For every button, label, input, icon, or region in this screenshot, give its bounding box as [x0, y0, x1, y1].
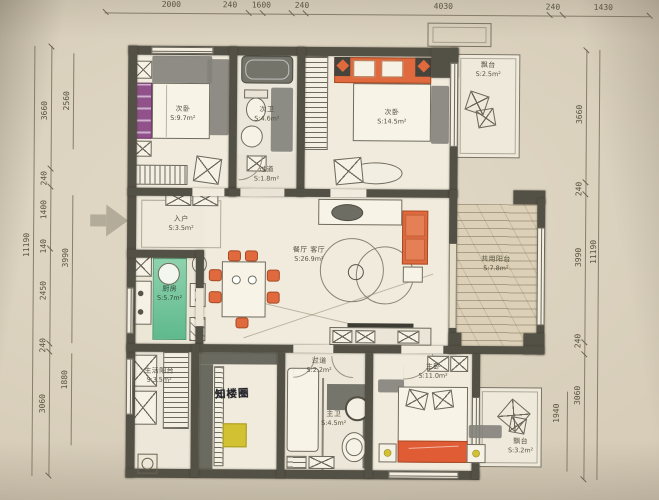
dim-label: 2000: [162, 0, 181, 9]
room-label-kitchen: 厨房 S:5.7m²: [154, 285, 186, 303]
seal-stamp-circle: [141, 458, 153, 470]
dim-label: 1400: [39, 200, 48, 219]
room-area: S:11.0m²: [409, 372, 457, 381]
room-area: S:5.7m²: [154, 294, 186, 303]
watermark-text: 知楼圈: [215, 384, 280, 402]
dim-line-right-inner: [566, 392, 568, 472]
entry-arrow-tail: [90, 214, 106, 226]
room-label-bay-bottom: 飘台 S:3.2m²: [499, 437, 543, 455]
dim-label: 240: [574, 182, 583, 197]
tv-screen: [347, 323, 413, 327]
door-opening: [401, 346, 443, 354]
room-name: 次卫: [245, 105, 289, 114]
floorplan-photo: 2000 240 1600 240 4030 240 1430 3660 240…: [0, 0, 659, 500]
seal-stamp-icon: [137, 454, 157, 474]
floor-shared-balcony: [456, 204, 537, 347]
dim-label: 1430: [594, 3, 613, 12]
door-opening: [293, 345, 333, 353]
window: [126, 288, 133, 334]
pillow: [353, 60, 375, 77]
shower-grate: [286, 456, 306, 469]
door-leaf: [333, 157, 363, 186]
room-area: S:26.9m²: [280, 255, 338, 264]
wall: [228, 46, 237, 196]
room-label-hallway-upper: 过道 S:1.8m²: [244, 165, 288, 183]
plate: [232, 275, 241, 284]
dining-chair: [209, 269, 222, 281]
dim-line-right: [583, 50, 587, 480]
room-label-entry: 入户 S:3.5m²: [158, 215, 204, 233]
pillow-sketch: [432, 390, 454, 410]
dim-label: 240: [546, 3, 561, 12]
room-area: S:3.2m²: [499, 446, 543, 455]
room-area: S:4.5m²: [321, 419, 347, 428]
room-name: 飘台: [499, 437, 543, 446]
plate: [248, 275, 257, 284]
dim-label-total: 11190: [22, 233, 31, 257]
dim-label: 3990: [574, 248, 583, 267]
door-leaf: [193, 155, 223, 185]
room-label-hallway-lower: 过道 S:2.2m²: [297, 357, 341, 375]
room-name: 过道: [245, 165, 289, 174]
wardrobe: [304, 56, 329, 150]
nightstand: [467, 444, 486, 463]
bathtub-master: [287, 368, 320, 452]
chair-sketch: [476, 108, 497, 129]
sofa-cushion: [405, 239, 425, 261]
room-label-service-balcony: 生活阳台 S:3.5m²: [129, 367, 189, 385]
room-name: 飘台: [463, 61, 513, 70]
dim-label: 3060: [573, 386, 582, 405]
wall: [127, 250, 204, 259]
window: [388, 471, 458, 478]
room-name: 生活阳台: [129, 367, 189, 377]
room-name: 餐厅 客厅: [280, 246, 338, 255]
dining-chair: [235, 317, 248, 328]
wall: [276, 353, 285, 478]
room-label-bay-top: 飘台 S:2.5m²: [463, 61, 513, 79]
dim-label: 3060: [38, 394, 47, 413]
bench-gray: [469, 425, 502, 438]
dim-label-total: 11190: [589, 240, 598, 264]
room-area: S:2.5m²: [463, 70, 513, 79]
dim-label: 1600: [252, 0, 271, 9]
dim-label: 1940: [552, 404, 561, 423]
stool-yellow: [223, 423, 247, 447]
dining-chair: [267, 292, 280, 304]
room-label-living-dining: 餐厅 客厅 S:26.9m²: [280, 246, 338, 264]
window: [450, 63, 459, 147]
wall: [296, 47, 305, 197]
dining-table: [222, 261, 266, 317]
dim-line-left-total: [31, 46, 35, 476]
dim-label: 4030: [434, 2, 453, 11]
dim-label: 240: [295, 1, 310, 10]
room-name: 次卧: [161, 105, 205, 114]
dim-label: 3660: [575, 105, 584, 124]
door-opening: [240, 188, 284, 196]
dim-label: 2450: [39, 281, 48, 300]
dim-label: 240: [39, 171, 48, 186]
door-opening: [195, 288, 203, 326]
side-table: [403, 267, 423, 283]
dim-line-left-inner3: [71, 353, 73, 445]
dresser: [133, 165, 187, 185]
room-name: 次卧: [369, 108, 415, 117]
room-label-bedroom-secondary-2: 次卧 S:14.5m²: [369, 108, 415, 126]
room-area: S:14.5m²: [369, 117, 415, 126]
room-name: 入户: [158, 215, 204, 224]
wall: [364, 353, 373, 478]
room-name: 主卧: [409, 363, 457, 372]
dim-label: 3660: [40, 101, 49, 120]
paper-sheet: 2000 240 1600 240 4030 240 1430 3660 240…: [0, 0, 659, 500]
room-area: S:3.5m²: [158, 224, 204, 233]
room-area: S:4.6m²: [245, 115, 289, 124]
dim-label: 2560: [62, 91, 71, 110]
wall: [190, 344, 199, 477]
dim-line-left-inner1: [73, 53, 75, 149]
dining-chair: [267, 270, 280, 282]
door-opening: [330, 189, 366, 197]
window: [151, 47, 213, 54]
coffee-table: [348, 264, 364, 280]
room-label-master-bath: 主卫 S:4.5m²: [321, 410, 347, 428]
shadow: [431, 86, 449, 144]
room-label-master-bedroom: 主卧 S:11.0m²: [409, 363, 457, 381]
kitchen-sink: [158, 263, 180, 285]
bathtub-inner: [245, 59, 289, 79]
room-area: S:1.8m²: [244, 174, 288, 183]
sink: [241, 125, 263, 147]
room-name: 主卫: [321, 410, 347, 419]
sofa-cushion: [405, 215, 425, 237]
wardrobe-rail: [213, 366, 224, 466]
dim-line-right-total: [596, 50, 600, 480]
room-name: 共用阳台: [468, 255, 524, 264]
tv-cabinet-door: [332, 330, 352, 343]
entry-arrow-icon: [106, 204, 128, 236]
window: [536, 227, 545, 325]
shadow: [152, 56, 212, 84]
dim-label: 240: [38, 338, 47, 353]
dim-line-left-inner2: [71, 195, 73, 343]
drying-rack: [163, 351, 190, 429]
dim-label: 140: [39, 239, 48, 254]
nightstand: [379, 443, 397, 462]
chair-sketch: [508, 416, 527, 435]
dim-label: 240: [573, 334, 582, 349]
wardrobe-dark: [198, 364, 213, 469]
dining-chair: [228, 250, 241, 261]
room-area: S:3.5m²: [129, 376, 189, 385]
toilet-seat: [346, 438, 363, 456]
door-opening: [192, 188, 224, 196]
shadow: [207, 59, 230, 135]
pillow: [381, 60, 403, 77]
dim-line-top: [105, 12, 650, 17]
room-area: S:2.2m²: [297, 366, 341, 375]
room-area: S:7.8m²: [468, 264, 524, 273]
wardrobe-dark: [199, 352, 277, 365]
dim-label: 1880: [60, 370, 69, 389]
shower-pan: [308, 456, 334, 469]
blanket-orange: [398, 440, 468, 462]
dim-label: 3990: [61, 248, 70, 267]
tv-cabinet-door: [355, 330, 375, 343]
room-area: S:9.7m²: [161, 114, 205, 123]
dining-chair: [209, 291, 222, 303]
dim-line-left: [48, 46, 52, 476]
decor-bowl: [331, 204, 363, 221]
tv-cabinet-door: [397, 330, 419, 343]
room-label-bath-secondary: 次卫 S:4.6m²: [245, 105, 289, 123]
bay-outline: [432, 27, 486, 43]
room-name: 过道: [297, 357, 341, 366]
room-label-shared-balcony: 共用阳台 S:7.8m²: [468, 255, 524, 273]
room-name: 厨房: [154, 285, 186, 294]
sliding-door-opening: [448, 244, 457, 328]
dining-chair: [245, 250, 258, 261]
dim-label: 240: [223, 0, 238, 9]
room-label-bedroom-secondary-1: 次卧 S:9.7m²: [161, 105, 205, 123]
